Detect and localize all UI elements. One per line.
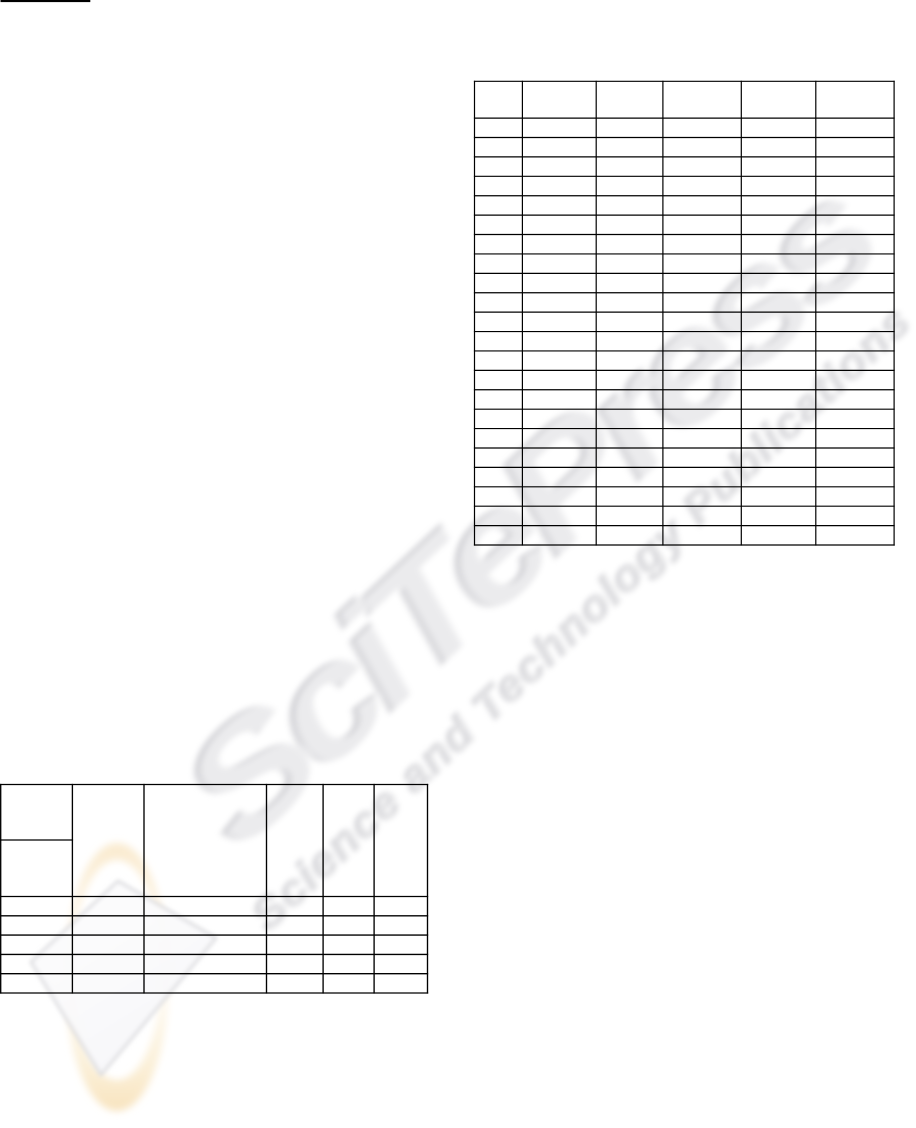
svg-text:SciTePress: SciTePress [152,150,914,877]
